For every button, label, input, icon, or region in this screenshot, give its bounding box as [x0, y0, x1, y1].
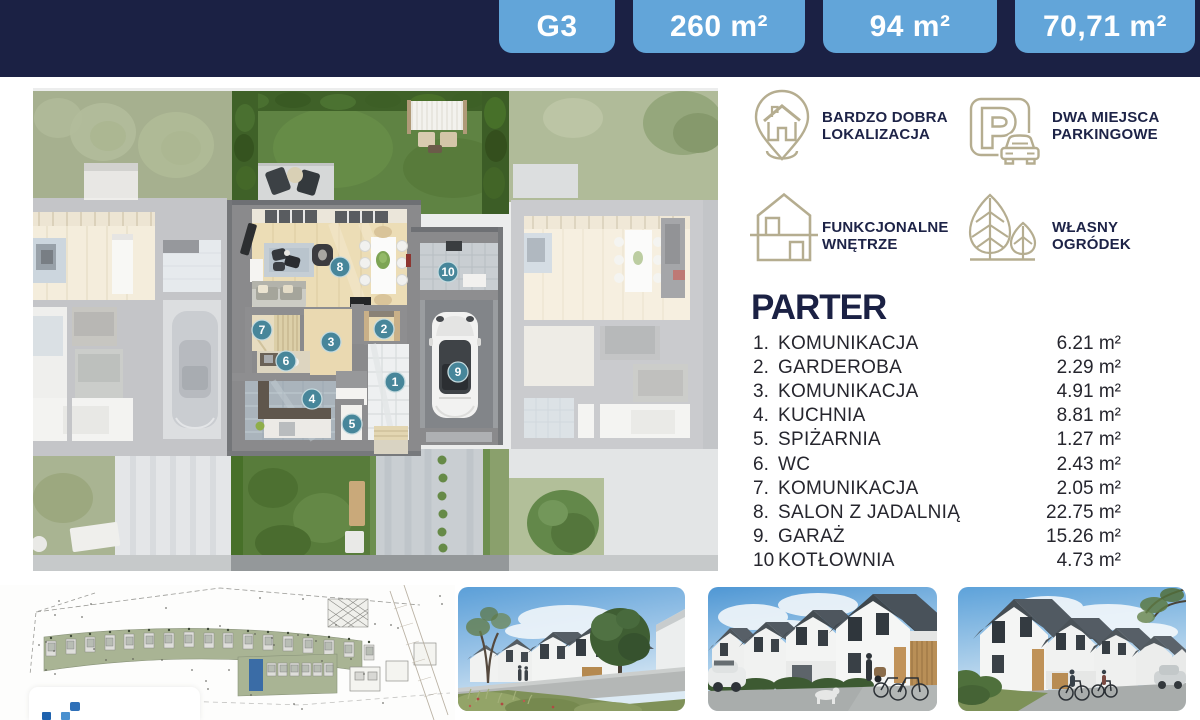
svg-text:6: 6 — [283, 354, 290, 368]
svg-text:3: 3 — [328, 335, 335, 349]
svg-text:1: 1 — [392, 375, 399, 389]
svg-text:5: 5 — [349, 417, 356, 431]
svg-text:4: 4 — [309, 392, 316, 406]
svg-text:7: 7 — [259, 323, 266, 337]
svg-text:2: 2 — [381, 322, 388, 336]
svg-text:9: 9 — [455, 365, 462, 379]
svg-text:10: 10 — [441, 265, 455, 279]
svg-text:8: 8 — [337, 260, 344, 274]
